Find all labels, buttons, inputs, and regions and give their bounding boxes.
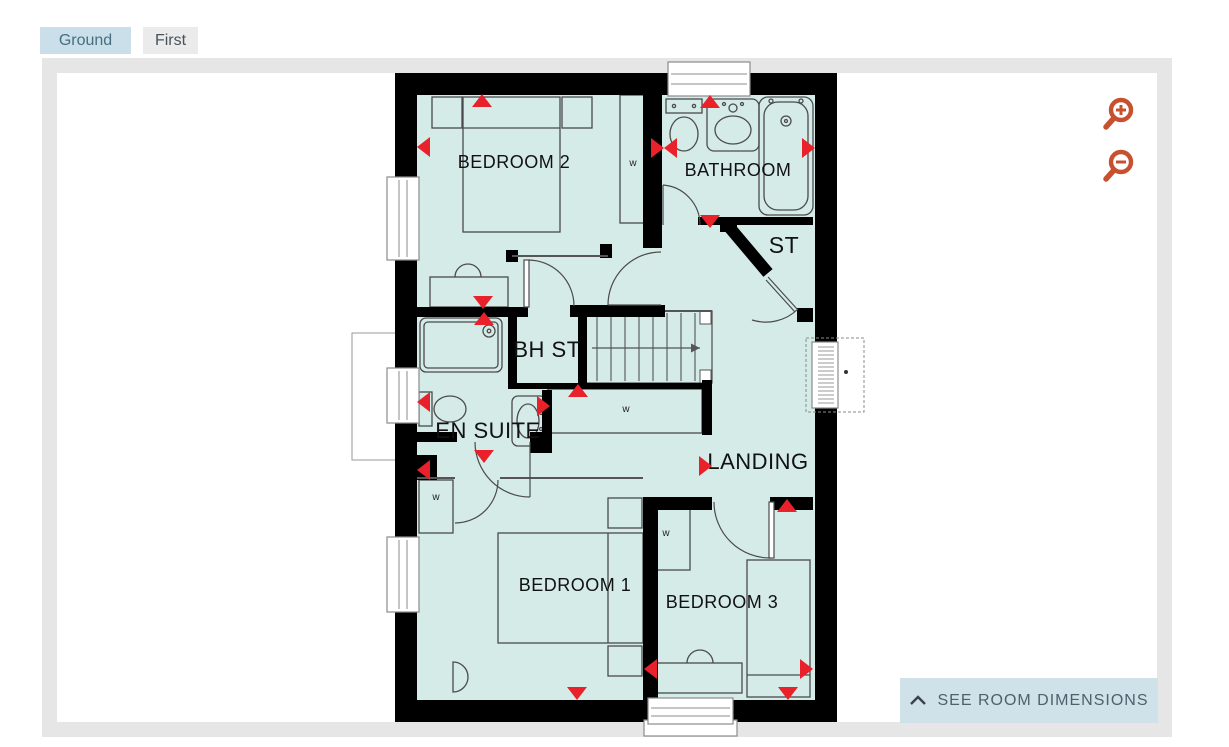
window	[387, 368, 419, 423]
room-label-bedroom-2: BEDROOM 2	[458, 152, 571, 172]
window	[806, 338, 864, 412]
zoom-in-button[interactable]	[1098, 94, 1138, 134]
tab-first[interactable]: First	[143, 27, 198, 54]
room-label-bh-st: BH ST	[513, 337, 580, 362]
wardrobe-marker: w	[628, 158, 637, 169]
room-label-bathroom: BATHROOM	[685, 160, 792, 180]
wardrobe-marker: w	[621, 404, 630, 415]
floorplan[interactable]: BEDROOM 2 BATHROOM ST BH ST EN SUITE LAN…	[340, 55, 880, 745]
see-room-dimensions-label: SEE ROOM DIMENSIONS	[937, 692, 1148, 710]
magnifier-plus-icon	[1098, 94, 1138, 134]
window	[644, 698, 737, 736]
room-label-bedroom-3: BEDROOM 3	[666, 592, 779, 612]
window	[387, 177, 419, 260]
see-room-dimensions-button[interactable]: SEE ROOM DIMENSIONS	[900, 678, 1158, 723]
wardrobe-marker: w	[661, 528, 670, 539]
magnifier-minus-icon	[1098, 146, 1138, 186]
window	[668, 62, 750, 96]
room-label-en-suite: EN SUITE	[435, 418, 540, 443]
tab-ground[interactable]: Ground	[40, 27, 131, 54]
wardrobe-marker: w	[431, 492, 440, 503]
room-label-st: ST	[769, 232, 799, 258]
window	[387, 537, 419, 612]
room-label-landing: LANDING	[707, 449, 808, 474]
zoom-out-button[interactable]	[1098, 146, 1138, 186]
room-label-bedroom-1: BEDROOM 1	[519, 575, 632, 595]
chevron-up-icon	[909, 695, 927, 706]
